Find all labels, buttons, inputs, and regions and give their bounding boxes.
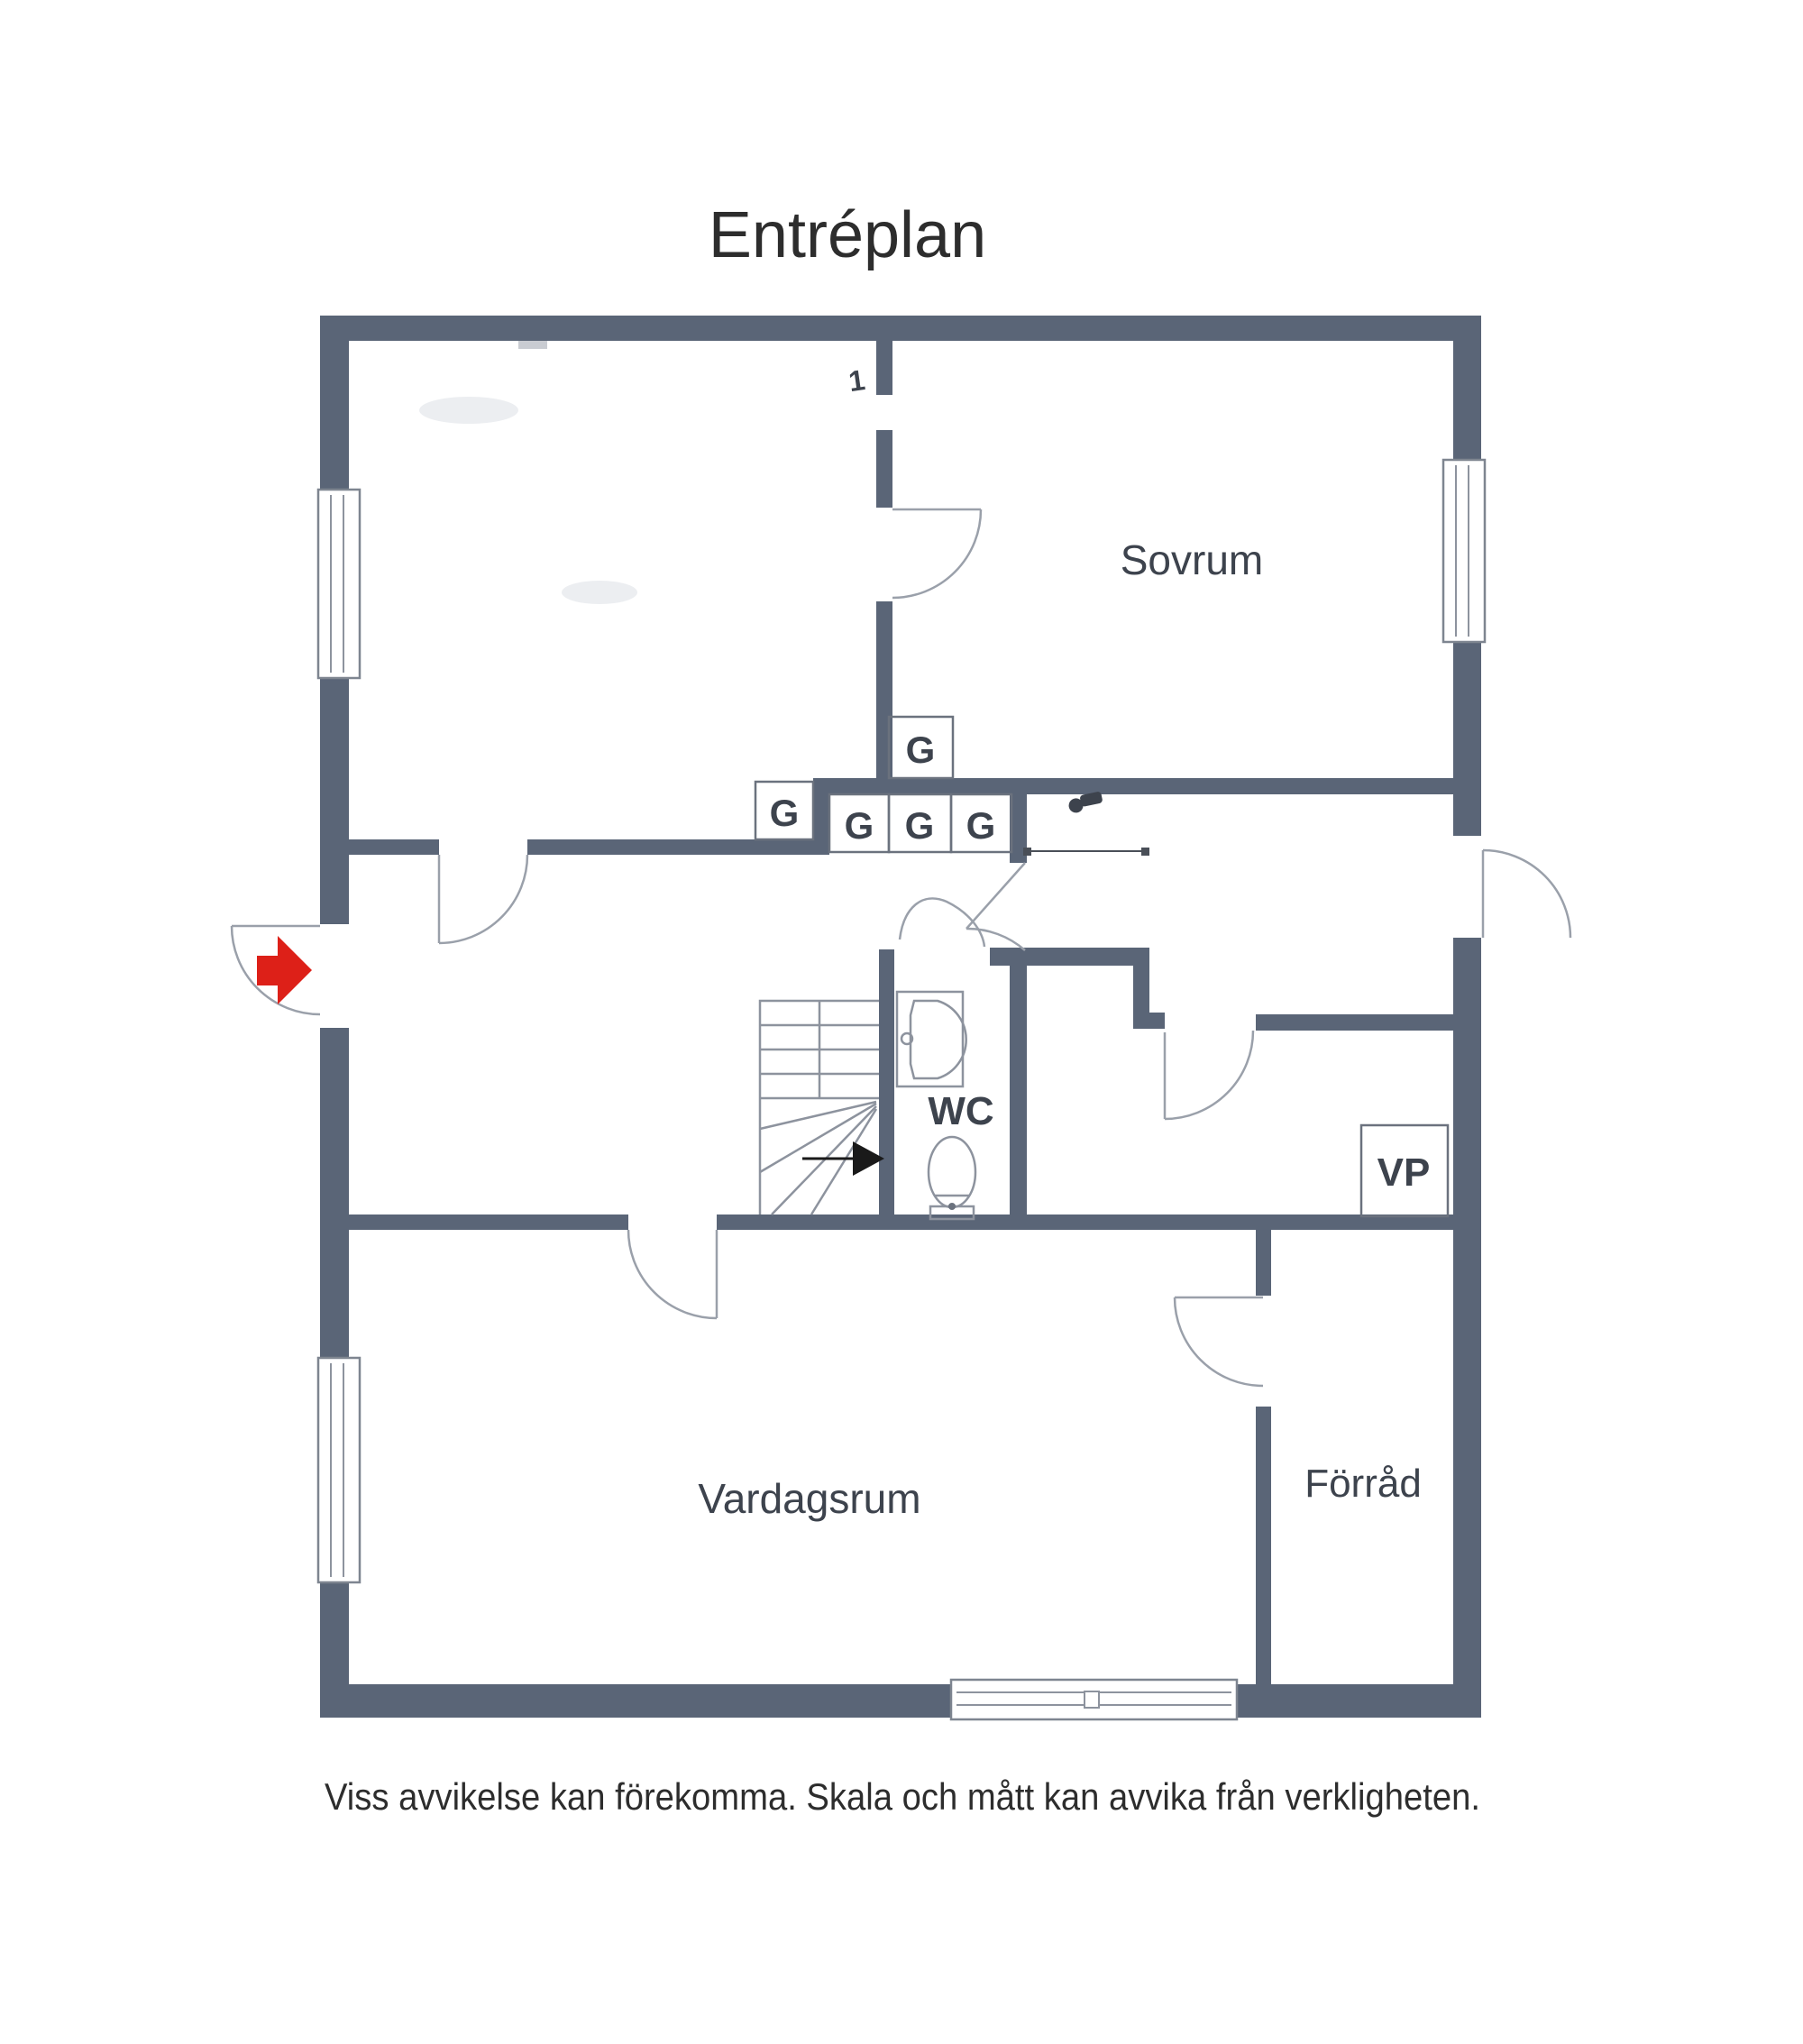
room-label-vardagsrum: Vardagsrum xyxy=(698,1475,920,1522)
vp-label: VP xyxy=(1377,1150,1431,1195)
closet-label: G xyxy=(906,729,936,771)
room-label-sovrum: Sovrum xyxy=(1121,536,1263,583)
door-topleft-room xyxy=(439,855,527,943)
closet-label: G xyxy=(770,792,800,834)
window-left-top xyxy=(318,490,360,678)
stair-number-note: 1 xyxy=(847,363,867,398)
stairs xyxy=(760,1001,884,1214)
corridor-measure-line xyxy=(1023,848,1149,856)
door-forrad xyxy=(1175,1297,1263,1386)
floor-plan-svg: G G G G G xyxy=(0,0,1803,2044)
wc-sink xyxy=(897,992,966,1086)
room-label-wc: WC xyxy=(928,1089,993,1133)
window-right xyxy=(1443,460,1485,642)
room-label-forrad: Förråd xyxy=(1304,1462,1422,1506)
wc-toilet xyxy=(929,1137,975,1219)
door-sovrum xyxy=(892,509,981,598)
door-right-exterior xyxy=(1483,850,1570,938)
page-title: Entréplan xyxy=(709,199,986,271)
door-vp-room xyxy=(1165,1031,1253,1119)
door-hall-corridor xyxy=(900,863,1025,950)
window-left-bottom xyxy=(318,1358,360,1582)
erased-smudges xyxy=(410,321,708,604)
floor-plan-page: G G G G G xyxy=(0,0,1803,2044)
disclaimer-text: Viss avvikelse kan förekomma. Skala och … xyxy=(325,1775,1480,1818)
corridor-icon xyxy=(1067,791,1104,814)
vp-box: VP xyxy=(1361,1125,1448,1216)
window-bottom xyxy=(951,1680,1237,1719)
windows xyxy=(318,460,1485,1719)
doors xyxy=(232,509,1570,1386)
closet-label: G xyxy=(905,804,935,847)
closet-label: G xyxy=(845,804,874,847)
closet-label: G xyxy=(966,804,996,847)
door-vardagsrum xyxy=(628,1230,717,1318)
